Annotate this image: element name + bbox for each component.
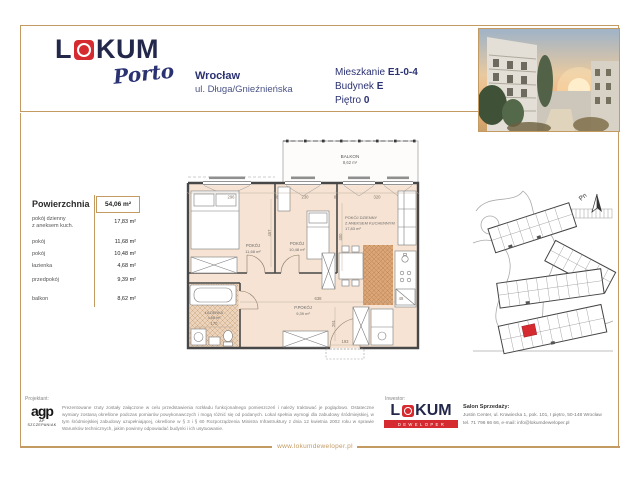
area-table: Powierzchnia 54,06 m² pokój dzienny z an…: [30, 196, 142, 311]
balcony-label: BALKON: [341, 154, 360, 159]
lokum-deweloper-logo: L KUM DEWELOPER: [384, 403, 458, 428]
footer-rule-right: [357, 446, 620, 448]
devlogo-o-ring-icon: [404, 407, 412, 415]
floor-plan: BALKON 8,62 m²: [185, 133, 435, 395]
devlogo-o-icon: [402, 405, 414, 417]
total-area-badge: 54,06 m²: [96, 196, 140, 213]
unit-info-block: Mieszkanie E1-0-4 Budynek E Piętro 0: [335, 66, 418, 108]
unit-row-budynek: Budynek E: [335, 80, 418, 94]
lokum-o-ring-icon: [77, 43, 91, 57]
footer-rule-left: [20, 446, 272, 448]
area-row-value: 4,68 m²: [96, 263, 136, 269]
devlogo-letter-l: L: [390, 403, 400, 419]
dim-text: 193: [342, 339, 350, 344]
room-area: 17,83 m²: [345, 226, 361, 231]
area-row-value: 10,48 m²: [96, 251, 136, 257]
unit-row-pietro: Piętro 0: [335, 94, 418, 108]
dim-text: 296: [228, 195, 236, 200]
dim-text: 400: [338, 233, 343, 241]
building-value: E: [377, 81, 384, 92]
architect-logo: agp AP SZCZEPANIAK: [24, 404, 60, 427]
sales-office-contact: tel. 71 796 66 66, e-mail: info@lokumdew…: [463, 420, 618, 428]
area-row-label: pokój: [32, 239, 92, 246]
dim-text: 170: [211, 321, 219, 326]
room-label: POKÓJ: [246, 243, 260, 248]
floor-label: Piętro: [335, 95, 364, 106]
dim-text: 261: [331, 319, 336, 327]
room-label: POKÓJ: [290, 241, 304, 246]
projektant-label: Projektant:: [25, 396, 49, 402]
sales-office-address: Justin Center, ul. Krawiecka 1, pok. 101…: [463, 412, 618, 420]
logo-letter-l: L: [55, 36, 72, 63]
building-middle: [497, 269, 604, 308]
dim-text: 638: [315, 296, 323, 301]
logo-letters-kum: KUM: [96, 36, 159, 63]
city-name: Wrocław: [195, 70, 293, 82]
floor-value: 0: [364, 95, 370, 106]
devlogo-band: DEWELOPER: [384, 420, 458, 428]
location-block: Wrocław ul. Długa/Gnieźnieńska: [195, 70, 293, 95]
architect-name: AP SZCZEPANIAK: [24, 419, 60, 427]
area-row-value: 17,83 m²: [96, 219, 136, 225]
site-map: Pn: [468, 183, 618, 363]
room-label: P.POKÓJ: [294, 305, 312, 310]
room-area: 9,39 m²: [296, 311, 310, 316]
building-highlighted: [498, 304, 607, 354]
area-row-label: łazienka: [32, 263, 92, 270]
unit-row-mieszkanie: Mieszkanie E1-0-4: [335, 66, 418, 80]
area-table-title: Powierzchnia: [32, 199, 90, 209]
area-table-divider: [94, 195, 95, 307]
unit-label: Mieszkanie: [335, 67, 388, 78]
room-label: POKÓJ DZIENNY: [345, 215, 378, 220]
architect-logo-mark: agp: [24, 404, 60, 418]
dim-text: 320: [374, 195, 382, 200]
area-row-value: 8,62 m²: [96, 296, 136, 302]
balcony: BALKON 8,62 m²: [283, 140, 418, 183]
kitchen-floor: [363, 245, 393, 305]
unit-value: E1-0-4: [388, 67, 418, 78]
devlogo-letters-kum: KUM: [415, 403, 451, 419]
legal-disclaimer: Prezentowane rzuty zostały załączone w c…: [62, 404, 374, 432]
area-row-label: balkon: [32, 296, 92, 303]
room-area: 4,68 m²: [208, 316, 222, 320]
dim-text: 457: [267, 229, 272, 237]
building-photo-art: [479, 29, 619, 131]
dim-text: 230: [302, 195, 310, 200]
area-row-label: pokój: [32, 251, 92, 258]
building-photo: [478, 28, 620, 132]
dim-text: 48: [399, 296, 404, 301]
building-label: Budynek: [335, 81, 377, 92]
room-area: 11,68 m²: [245, 249, 261, 254]
room-label: ŁAZIENKA: [205, 311, 224, 315]
area-row-value: 11,68 m²: [96, 239, 136, 245]
area-row-label: pokój dzienny z aneksem kuch.: [32, 216, 92, 230]
sales-office-block: Salon Sprzedaży: Justin Center, ul. Kraw…: [463, 404, 618, 428]
north-label: Pn: [578, 192, 589, 203]
balcony-area: 8,62 m²: [343, 160, 358, 165]
website-link[interactable]: www.lokumdeweloper.pl: [272, 443, 358, 450]
room-area: 10,48 m²: [289, 247, 305, 252]
street-name: ul. Długa/Gnieźnieńska: [195, 84, 293, 95]
sales-office-title: Salon Sprzedaży:: [463, 404, 618, 410]
room-label: Z ANEKSEM KUCHENNYM: [345, 221, 395, 226]
brochure-page: L KUM Porto Wrocław ul. Długa/Gnieźnieńs…: [0, 0, 640, 480]
highlighted-unit: [522, 324, 537, 337]
area-row-label: przedpokój: [32, 277, 92, 284]
lokum-o-icon: [74, 40, 94, 60]
area-row-value: 9,39 m²: [96, 277, 136, 283]
